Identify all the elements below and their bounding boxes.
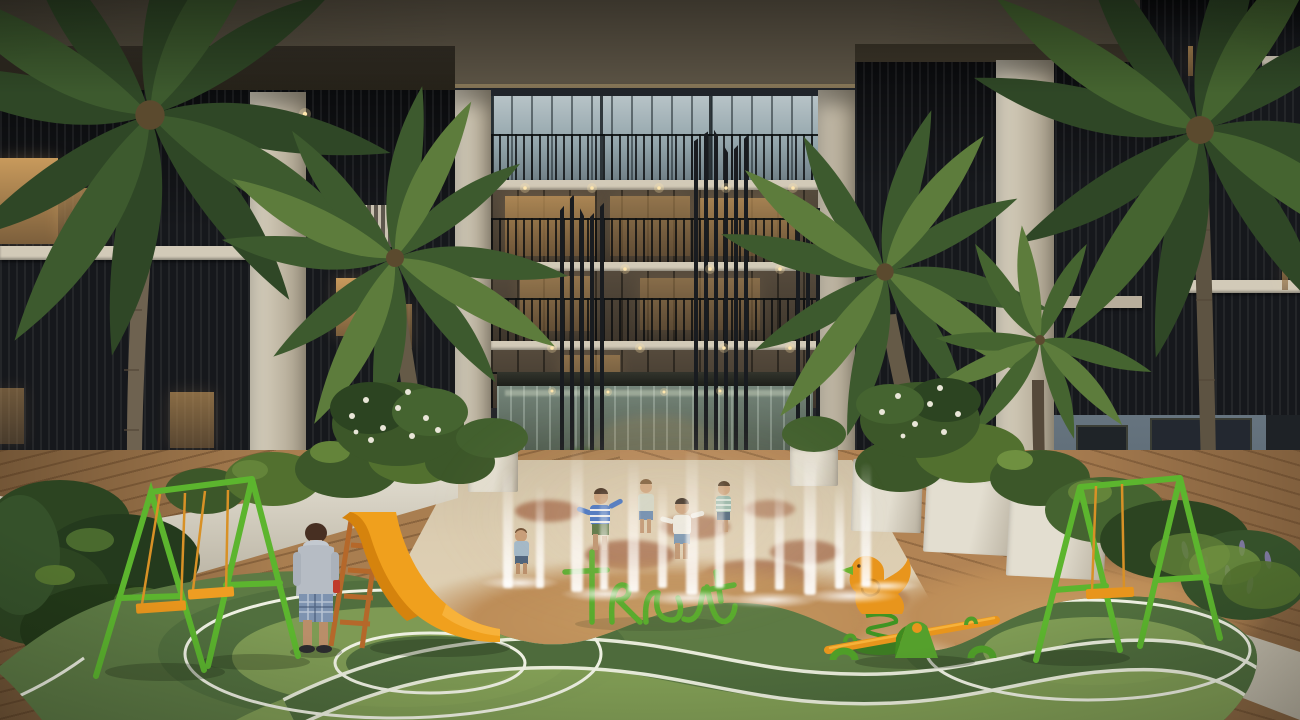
water-splash: [850, 580, 920, 592]
swing-set-left: [96, 479, 298, 676]
swing-set-right: [1036, 478, 1220, 660]
courtyard-scene: Dusk architectural rendering of a reside…: [0, 0, 1300, 720]
warm-center-glow: [430, 380, 890, 640]
seesaw: [828, 618, 996, 660]
